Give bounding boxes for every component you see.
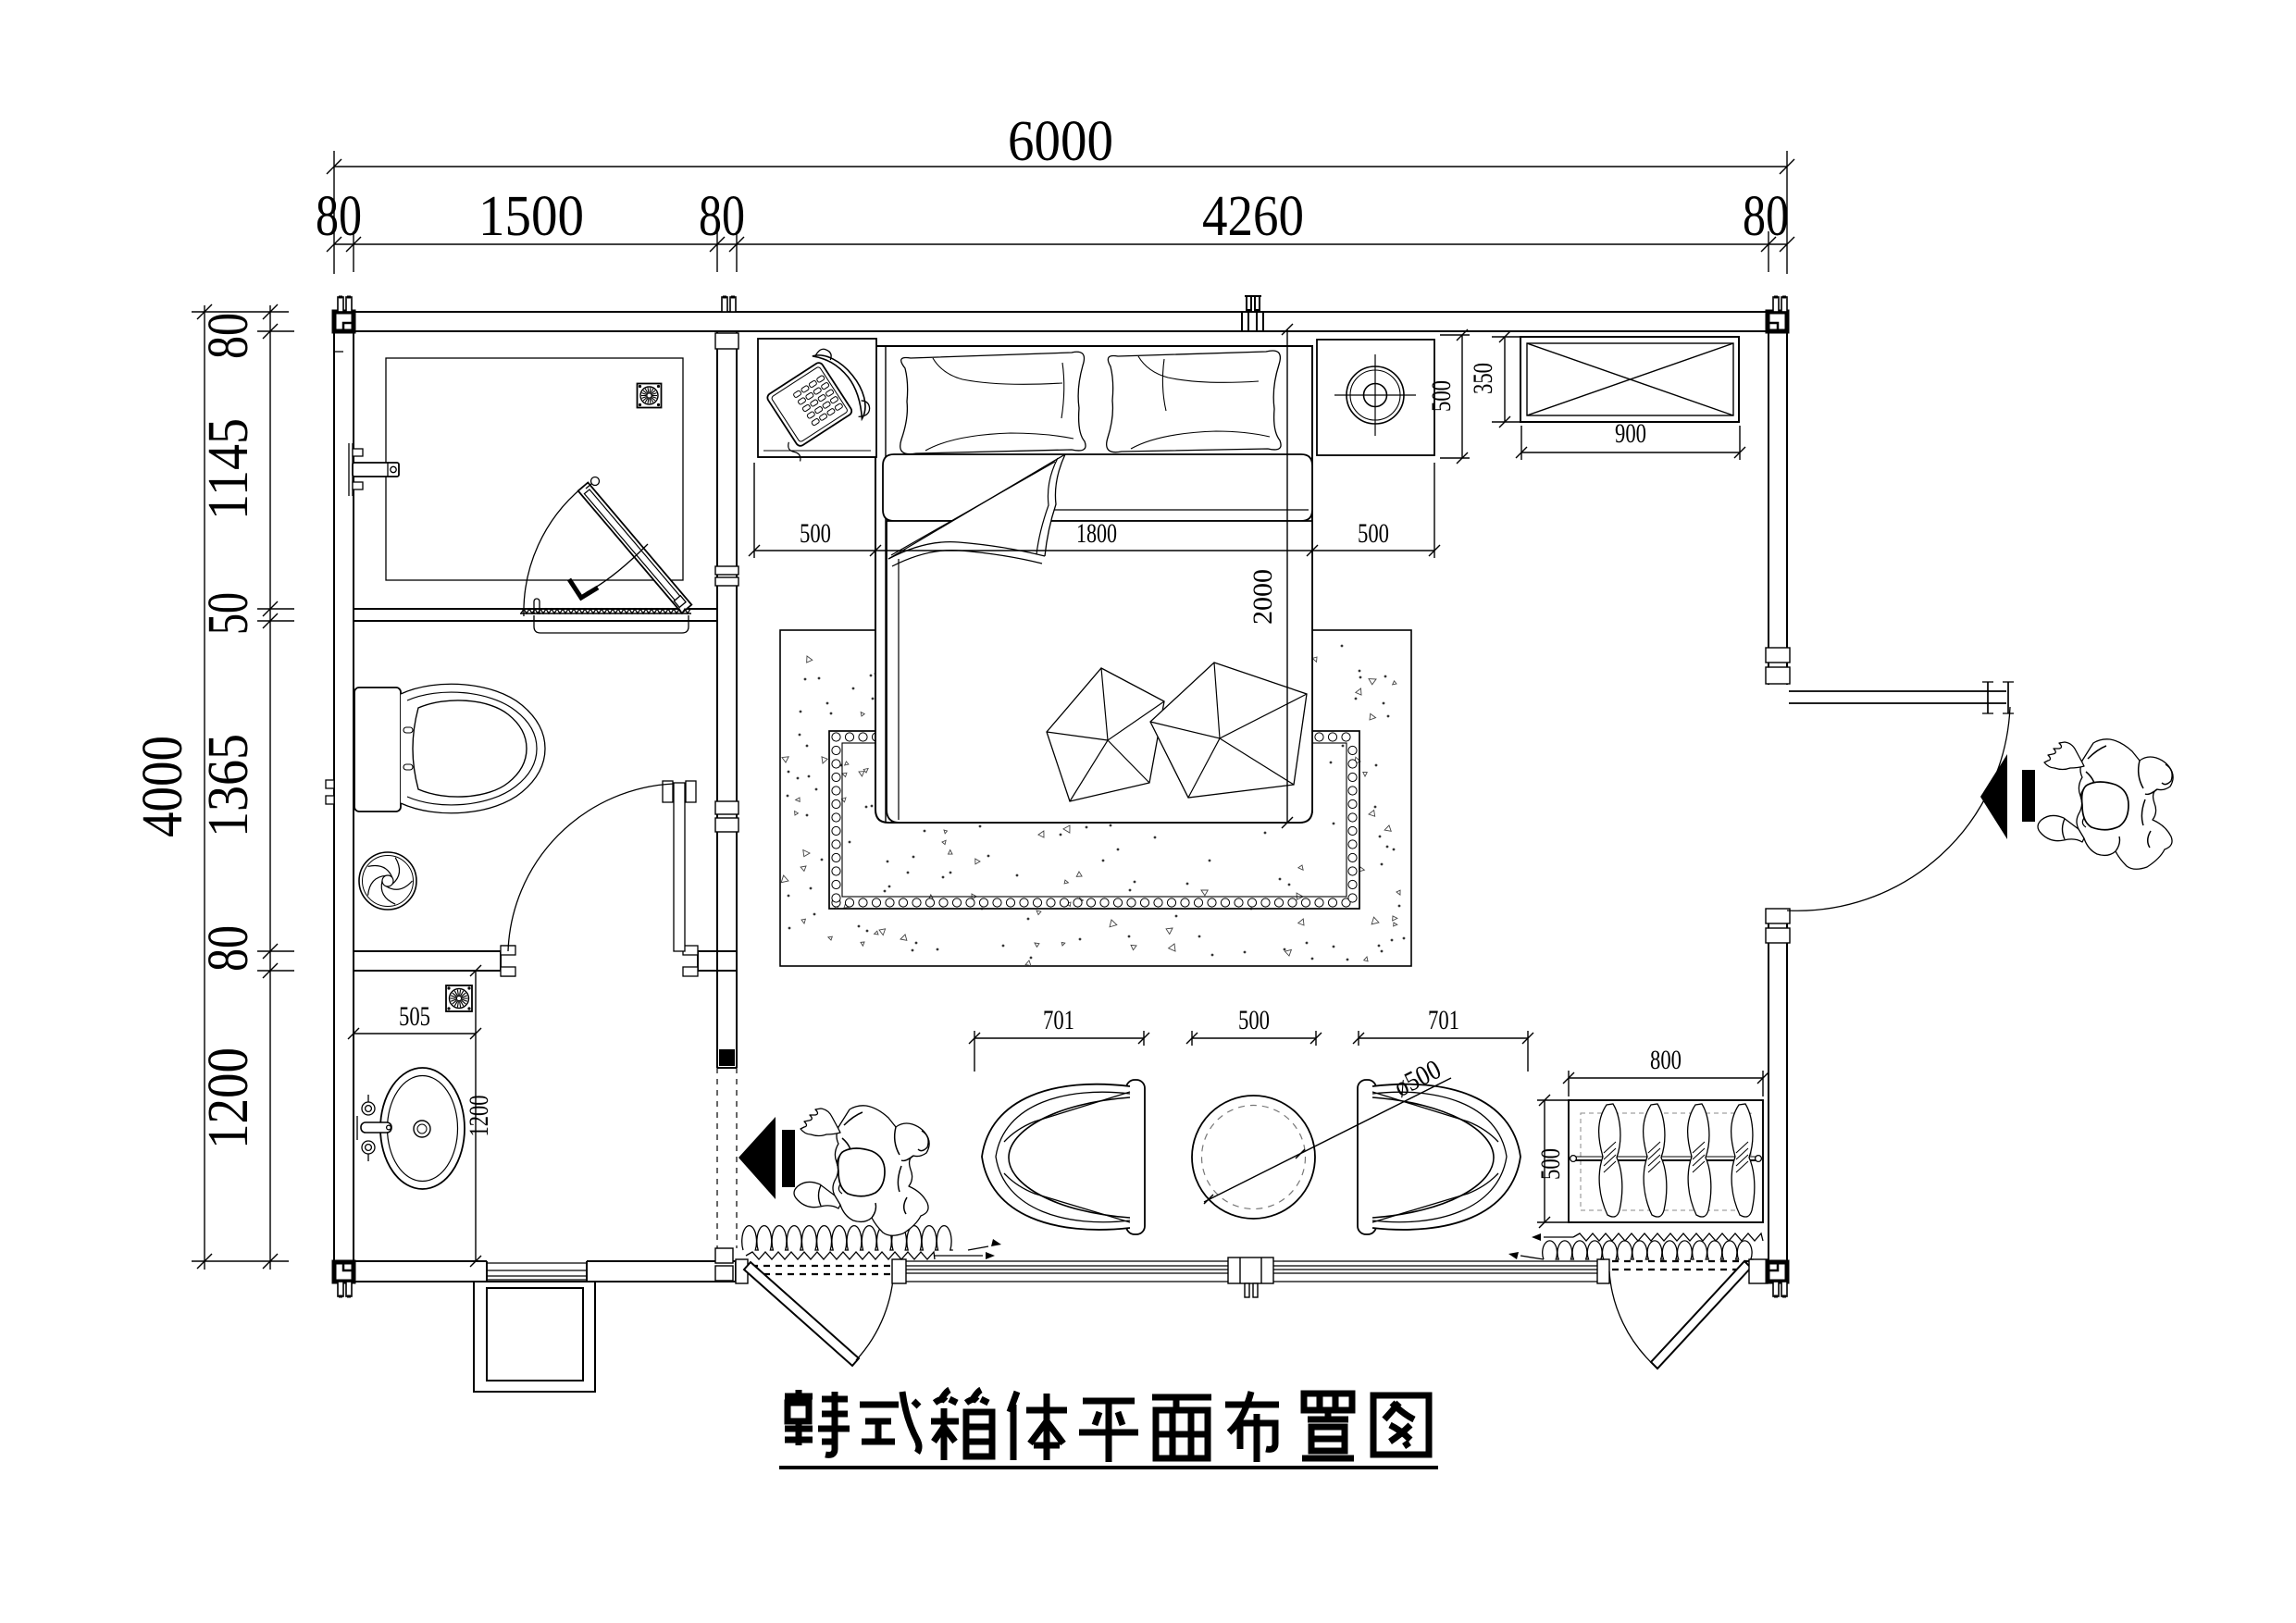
svg-text:4260: 4260 — [1202, 185, 1304, 248]
svg-text:701: 701 — [1043, 1005, 1074, 1035]
svg-text:1800: 1800 — [1076, 518, 1117, 549]
svg-text:1200: 1200 — [464, 1096, 494, 1137]
svg-text:1365: 1365 — [197, 734, 260, 837]
svg-text:80: 80 — [197, 925, 260, 972]
svg-text:80: 80 — [699, 185, 745, 248]
svg-text:1200: 1200 — [197, 1047, 260, 1149]
svg-text:2000: 2000 — [1247, 569, 1278, 625]
svg-text:1145: 1145 — [197, 418, 260, 520]
svg-text:350: 350 — [1468, 363, 1498, 394]
svg-text:500: 500 — [800, 518, 831, 549]
svg-text:6000: 6000 — [1008, 110, 1113, 173]
svg-text:900: 900 — [1615, 418, 1646, 449]
svg-text:4000: 4000 — [131, 736, 194, 837]
svg-text:505: 505 — [399, 1001, 430, 1032]
svg-text:500: 500 — [1238, 1005, 1270, 1035]
svg-text:701: 701 — [1428, 1005, 1459, 1035]
svg-text:50: 50 — [197, 592, 260, 635]
svg-text:500: 500 — [1426, 380, 1457, 412]
svg-text:500: 500 — [1535, 1148, 1566, 1180]
svg-text:80: 80 — [1743, 185, 1789, 248]
svg-text:500: 500 — [1358, 518, 1389, 549]
svg-text:80: 80 — [197, 313, 260, 359]
svg-text:800: 800 — [1650, 1045, 1682, 1075]
svg-text:80: 80 — [316, 185, 362, 248]
svg-text:1500: 1500 — [478, 185, 584, 248]
